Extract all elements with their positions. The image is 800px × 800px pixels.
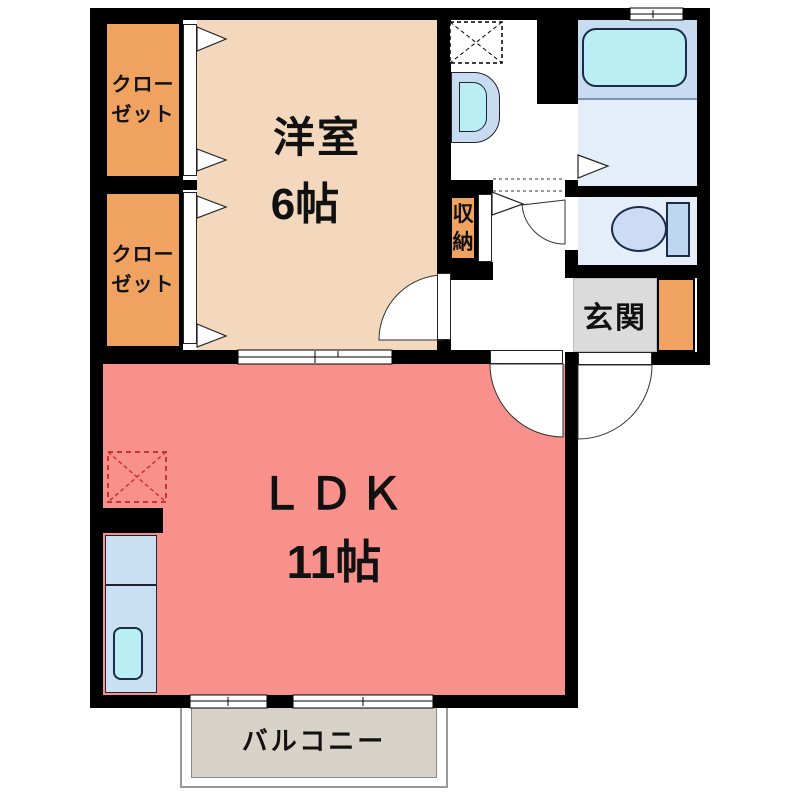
- ldk-door-swing-arc: [490, 364, 563, 437]
- western-room-size: 6帖: [185, 172, 425, 228]
- western-door-swing-arc: [379, 275, 444, 340]
- closet-1-door: [183, 24, 197, 176]
- ldk-window-right: [293, 695, 433, 708]
- closet-1-door-icon: [197, 27, 226, 51]
- western-room-name: 洋室: [197, 108, 437, 160]
- closet-1-label: クロー ゼット: [103, 58, 183, 142]
- storage-label: 収 納: [448, 198, 478, 260]
- closet-2-label: クロー ゼット: [103, 228, 183, 312]
- western-ldk-sliding-door: [238, 350, 392, 364]
- floorplan-canvas: バルコニー: [0, 0, 800, 800]
- storage-door-icon: [492, 192, 523, 215]
- washing-machine-space-icon: [450, 22, 502, 63]
- western-room-door: [437, 273, 451, 340]
- closet-2-door-icon: [197, 324, 226, 347]
- storage-door: [478, 194, 492, 262]
- ldk-door: [490, 350, 563, 364]
- front-door: [578, 352, 652, 365]
- ldk-size: 11帖: [103, 530, 565, 588]
- ldk-name: ＬＤＫ: [103, 462, 565, 518]
- toilet-door-swing-arc: [522, 200, 565, 244]
- front-door-swing-arc: [578, 365, 652, 439]
- entrance-label: 玄関: [573, 292, 657, 338]
- bathroom-window: [630, 8, 683, 20]
- ldk-window-left: [190, 695, 267, 708]
- bathroom-door-icon: [578, 155, 608, 178]
